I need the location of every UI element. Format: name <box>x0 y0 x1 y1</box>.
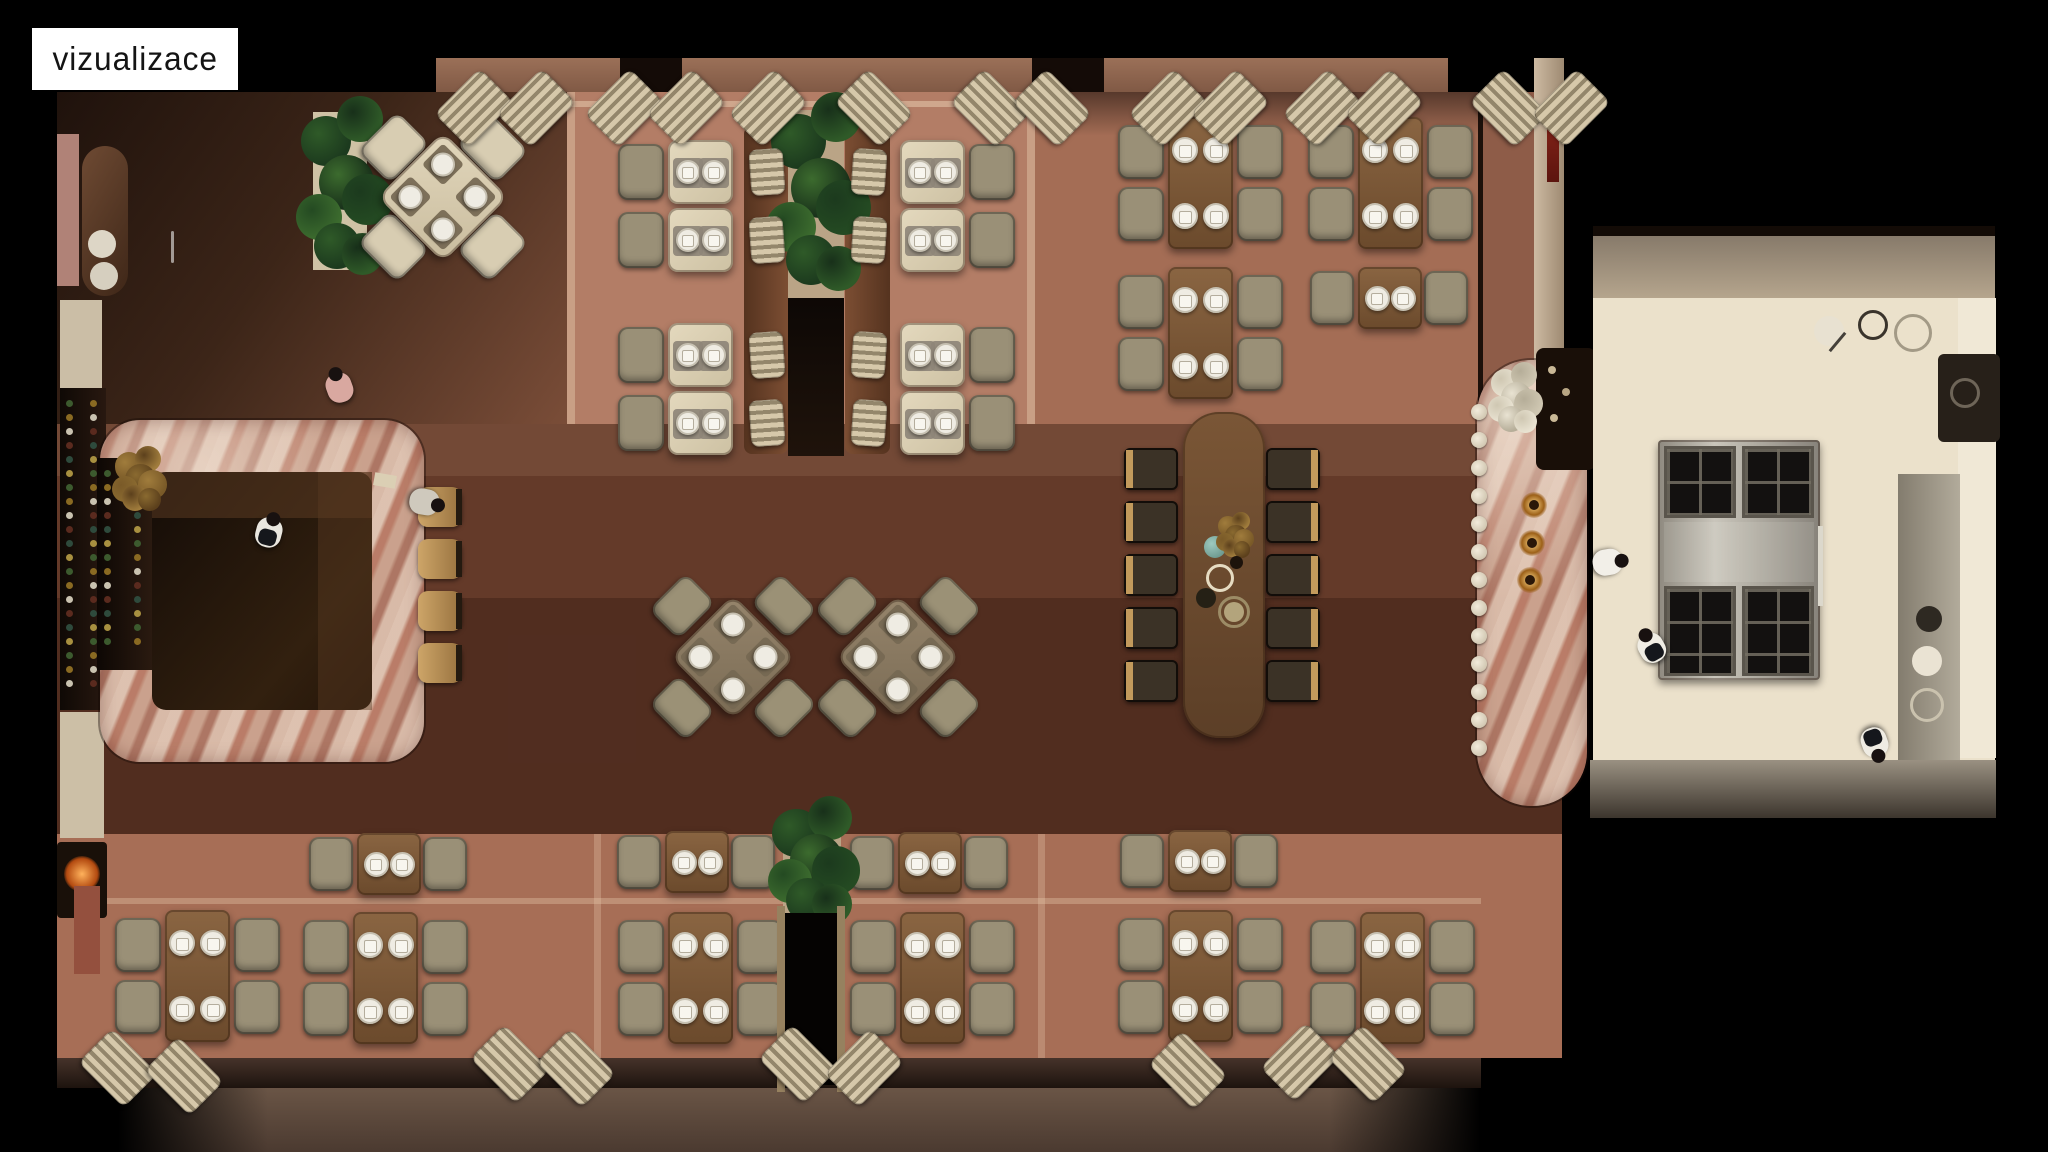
bottle <box>90 470 97 477</box>
bottle <box>66 540 73 547</box>
bottle <box>66 526 73 533</box>
dining-chair <box>850 920 896 974</box>
bottle <box>90 568 97 575</box>
stool-back <box>456 541 462 577</box>
dining-chair <box>1118 187 1164 241</box>
bottle <box>90 498 97 505</box>
bottle <box>66 582 73 589</box>
pass-stool-row <box>1471 516 1487 532</box>
bottle <box>104 638 111 645</box>
bottle <box>90 624 97 631</box>
napkin <box>1179 1004 1192 1017</box>
booth-cushion <box>850 216 887 264</box>
napkin <box>940 418 952 430</box>
chair-back <box>1311 662 1318 700</box>
bottle <box>104 512 111 519</box>
dining-chair <box>964 836 1008 890</box>
napkin <box>708 350 720 362</box>
bottle <box>90 526 97 533</box>
napkin <box>1402 940 1415 953</box>
dining-chair <box>1237 187 1283 241</box>
napkin <box>1179 295 1192 308</box>
bottle <box>104 540 111 547</box>
napkin <box>396 859 409 872</box>
booth-cushion <box>850 331 887 379</box>
napkin <box>1210 145 1223 158</box>
napkin <box>708 418 720 430</box>
booth-cushion <box>850 399 887 447</box>
dining-chair <box>1429 982 1475 1036</box>
napkin <box>395 940 408 953</box>
dining-chair <box>115 980 161 1034</box>
bottle <box>66 596 73 603</box>
chair-back <box>1126 450 1133 488</box>
napkin <box>682 235 694 247</box>
pass-stool-row <box>1471 544 1487 560</box>
bottle <box>104 596 111 603</box>
napkin <box>708 167 720 179</box>
hostess-stool <box>90 262 118 290</box>
napkin <box>911 1006 924 1019</box>
dining-chair <box>422 982 468 1036</box>
bottle <box>134 568 141 575</box>
pass-stool-row <box>1471 712 1487 728</box>
chair-back <box>1126 556 1133 594</box>
napkin <box>176 938 189 951</box>
bottle <box>134 582 141 589</box>
bottle <box>66 428 73 435</box>
bottle <box>134 610 141 617</box>
espresso-cup <box>1550 414 1558 422</box>
chair-back <box>1126 503 1133 541</box>
communal-chair <box>1266 660 1320 702</box>
pass-stool-row <box>1471 684 1487 700</box>
napkin <box>1179 361 1192 374</box>
wall-artwork <box>74 886 100 974</box>
dining-table-four <box>165 910 230 1042</box>
bottle <box>66 624 73 631</box>
napkin <box>1179 938 1192 951</box>
dining-chair <box>115 918 161 972</box>
dining-chair <box>618 144 664 200</box>
bottle <box>90 680 97 687</box>
pass-stool-row <box>1471 572 1487 588</box>
pass-stool-row <box>1471 432 1487 448</box>
communal-chair <box>1266 448 1320 490</box>
bottle <box>90 484 97 491</box>
dining-chair <box>303 920 349 974</box>
communal-chair <box>1124 607 1178 649</box>
dining-chair <box>1308 187 1354 241</box>
chair-back <box>1311 556 1318 594</box>
dining-chair <box>969 144 1015 200</box>
stool-back <box>456 593 462 629</box>
bottle <box>104 498 111 505</box>
napkin <box>942 940 955 953</box>
napkin <box>682 418 694 430</box>
island-grate <box>1742 446 1814 518</box>
bottle <box>90 428 97 435</box>
dining-chair <box>422 920 468 974</box>
bottle <box>90 666 97 673</box>
bottle <box>66 442 73 449</box>
decor-sprig <box>1196 588 1216 608</box>
napkin <box>911 858 924 871</box>
bottle <box>134 596 141 603</box>
top-walkway <box>436 58 1448 94</box>
kitchen-pass-counter <box>1590 760 1996 818</box>
dining-chair <box>1118 337 1164 391</box>
bottle <box>66 470 73 477</box>
wall-cabinet <box>60 712 104 838</box>
napkin <box>1210 1004 1223 1017</box>
dining-chair <box>1310 271 1354 325</box>
dining-chair <box>618 920 664 974</box>
island-grate <box>1664 446 1736 518</box>
napkin <box>364 1006 377 1019</box>
dining-chair <box>618 327 664 383</box>
dining-chair <box>1118 275 1164 329</box>
espresso-station <box>1536 348 1596 470</box>
napkin <box>911 940 924 953</box>
napkin <box>679 1006 692 1019</box>
dining-table-four <box>900 912 965 1044</box>
bottle <box>104 484 111 491</box>
espresso-cup <box>1548 366 1556 374</box>
dining-chair <box>1429 920 1475 974</box>
bottle <box>90 596 97 603</box>
napkin <box>682 350 694 362</box>
napkin <box>940 350 952 362</box>
dining-chair <box>969 212 1015 268</box>
booth-cushion <box>748 399 785 447</box>
napkin <box>942 1006 955 1019</box>
wire-rack <box>1910 688 1944 722</box>
napkin <box>207 938 220 951</box>
dining-chair <box>1237 918 1283 972</box>
corridor-wall-line <box>1478 92 1483 432</box>
dining-chair <box>617 835 661 889</box>
bar-stool <box>418 643 462 683</box>
floor-trim-line <box>594 834 601 1058</box>
dining-chair <box>234 980 280 1034</box>
napkin <box>940 167 952 179</box>
dining-chair <box>1118 918 1164 972</box>
napkin <box>940 235 952 247</box>
dining-table-four <box>1168 267 1233 399</box>
light-marker <box>171 231 174 263</box>
bar-stool <box>418 591 462 631</box>
napkin <box>1369 211 1382 224</box>
dining-chair <box>1234 834 1278 888</box>
dining-table-four <box>1360 912 1425 1044</box>
napkin <box>370 859 383 872</box>
napkin <box>207 1004 220 1017</box>
dining-chair <box>1424 271 1468 325</box>
booth-cushion <box>748 331 785 379</box>
napkin <box>710 940 723 953</box>
island-grate <box>1742 586 1814 676</box>
dining-chair <box>969 395 1015 451</box>
napkin <box>1210 211 1223 224</box>
visualization-label: vizualizace <box>32 28 238 90</box>
bottle <box>90 554 97 561</box>
restaurant-floorplan-render: vizualizace <box>0 0 2048 1152</box>
bar-stool <box>418 539 462 579</box>
napkin <box>1371 1006 1384 1019</box>
napkin <box>1179 145 1192 158</box>
napkin <box>1371 293 1384 306</box>
dining-chair <box>618 395 664 451</box>
bottle <box>90 414 97 421</box>
island-counter-light <box>1664 522 1814 582</box>
floor-trim-line <box>1038 834 1045 1058</box>
napkin <box>1210 361 1223 374</box>
hostess-stool <box>88 230 116 258</box>
chair-back <box>1311 450 1318 488</box>
napkin <box>914 418 926 430</box>
corner-station-sink <box>1950 378 1980 408</box>
napkin <box>1369 145 1382 158</box>
dining-chair <box>1310 982 1356 1036</box>
dining-chair <box>1427 187 1473 241</box>
napkin <box>679 940 692 953</box>
chair-back <box>1126 609 1133 647</box>
candle-bowl <box>1525 575 1535 585</box>
bottle <box>90 456 97 463</box>
round-board <box>1912 646 1942 676</box>
bottle <box>104 526 111 533</box>
napkin <box>682 167 694 179</box>
stock-pot <box>1916 606 1942 632</box>
bottle <box>90 638 97 645</box>
dining-chair <box>1237 275 1283 329</box>
bottle <box>134 526 141 533</box>
stool-back <box>456 489 462 525</box>
bottle <box>66 638 73 645</box>
pass-stool-row <box>1471 600 1487 616</box>
chair-back <box>1311 609 1318 647</box>
bottle <box>66 414 73 421</box>
floor-trim-line <box>1027 92 1035 458</box>
napkin <box>1179 211 1192 224</box>
bottle <box>90 652 97 659</box>
napkin <box>1402 1006 1415 1019</box>
saute-pan <box>1858 310 1888 340</box>
dining-table-four <box>353 912 418 1044</box>
bottle <box>134 554 141 561</box>
dining-chair <box>618 982 664 1036</box>
dining-chair <box>618 212 664 268</box>
pass-stool-row <box>1471 460 1487 476</box>
communal-chair <box>1124 554 1178 596</box>
dining-chair <box>309 837 353 891</box>
bottle <box>90 512 97 519</box>
kitchen-top-wall <box>1593 226 1995 236</box>
dining-chair <box>969 982 1015 1036</box>
pass-stool-row <box>1471 656 1487 672</box>
bottle <box>134 540 141 547</box>
small-vase <box>1230 556 1243 569</box>
pass-stool-row <box>1471 628 1487 644</box>
bottle <box>90 400 97 407</box>
dining-chair <box>1427 125 1473 179</box>
kitchen-side-counter <box>1898 474 1960 794</box>
walkway-fade <box>1330 1088 1480 1152</box>
floor-trim-line <box>57 898 1481 904</box>
espresso-cup <box>1562 388 1570 396</box>
bottle <box>66 456 73 463</box>
communal-chair <box>1124 660 1178 702</box>
serving-tray-food <box>1224 602 1244 622</box>
napkin <box>1210 938 1223 951</box>
dining-table-four <box>1168 910 1233 1042</box>
booth-cushion <box>748 216 785 264</box>
pizza-wheel <box>1894 314 1932 352</box>
napkin <box>914 235 926 247</box>
bottle <box>66 554 73 561</box>
napkin <box>1397 293 1410 306</box>
communal-chair <box>1266 607 1320 649</box>
communal-chair <box>1266 501 1320 543</box>
napkin <box>914 167 926 179</box>
dining-chair <box>1237 337 1283 391</box>
terrazzo-art-panel <box>57 134 79 286</box>
napkin <box>704 857 717 870</box>
napkin <box>176 1004 189 1017</box>
napkin <box>1207 856 1220 869</box>
dining-chair <box>969 327 1015 383</box>
napkin <box>678 857 691 870</box>
candle-bowl <box>1529 500 1539 510</box>
spine-divider <box>788 298 844 456</box>
bottle <box>66 568 73 575</box>
dining-chair <box>1118 980 1164 1034</box>
chair-back <box>1126 662 1133 700</box>
bottle <box>104 568 111 575</box>
floor-trim-line <box>567 92 575 458</box>
bottle <box>66 680 73 687</box>
candle-bowl <box>1527 538 1537 548</box>
bottle <box>66 400 73 407</box>
bottle <box>104 470 111 477</box>
napkin <box>1371 940 1384 953</box>
napkin <box>395 1006 408 1019</box>
island-rail <box>1818 526 1823 606</box>
pass-stool-row <box>1471 488 1487 504</box>
dining-chair <box>1237 125 1283 179</box>
bottle <box>66 652 73 659</box>
napkin <box>708 235 720 247</box>
dining-chair <box>1237 980 1283 1034</box>
bottle <box>104 624 111 631</box>
bottle <box>66 498 73 505</box>
communal-chair <box>1124 448 1178 490</box>
napkin <box>1210 295 1223 308</box>
bottle <box>66 666 73 673</box>
kitchen-prep-counter <box>1593 236 1995 298</box>
booth-cushion <box>748 148 785 196</box>
bottle <box>90 610 97 617</box>
bottle <box>134 512 141 519</box>
chair-back <box>1311 503 1318 541</box>
bottle <box>104 554 111 561</box>
visualization-label-text: vizualizace <box>52 40 218 78</box>
bottle <box>66 512 73 519</box>
napkin <box>364 940 377 953</box>
stool-back <box>456 645 462 681</box>
bottle <box>134 638 141 645</box>
dining-chair <box>1310 920 1356 974</box>
bottle <box>66 610 73 617</box>
booth-cushion <box>850 148 887 196</box>
dining-chair <box>234 918 280 972</box>
bottle <box>134 624 141 631</box>
citrus-plate <box>1206 564 1234 592</box>
communal-chair <box>1124 501 1178 543</box>
bottle <box>104 582 111 589</box>
bottle <box>90 582 97 589</box>
pass-stool-row <box>1471 404 1487 420</box>
pass-stool-row <box>1471 740 1487 756</box>
island-grate <box>1664 586 1736 676</box>
napkin <box>710 1006 723 1019</box>
napkin <box>937 858 950 871</box>
bottle <box>66 484 73 491</box>
napkin <box>1400 211 1413 224</box>
bottle <box>90 540 97 547</box>
napkin <box>914 350 926 362</box>
napkin <box>1181 856 1194 869</box>
dining-chair <box>303 982 349 1036</box>
bottle <box>90 442 97 449</box>
communal-chair <box>1266 554 1320 596</box>
dining-chair <box>969 920 1015 974</box>
dining-table-four <box>668 912 733 1044</box>
bottle <box>104 610 111 617</box>
dining-chair <box>423 837 467 891</box>
bar-work-counter <box>318 472 372 710</box>
dining-chair <box>1120 834 1164 888</box>
napkin <box>1400 145 1413 158</box>
dining-chair <box>850 982 896 1036</box>
